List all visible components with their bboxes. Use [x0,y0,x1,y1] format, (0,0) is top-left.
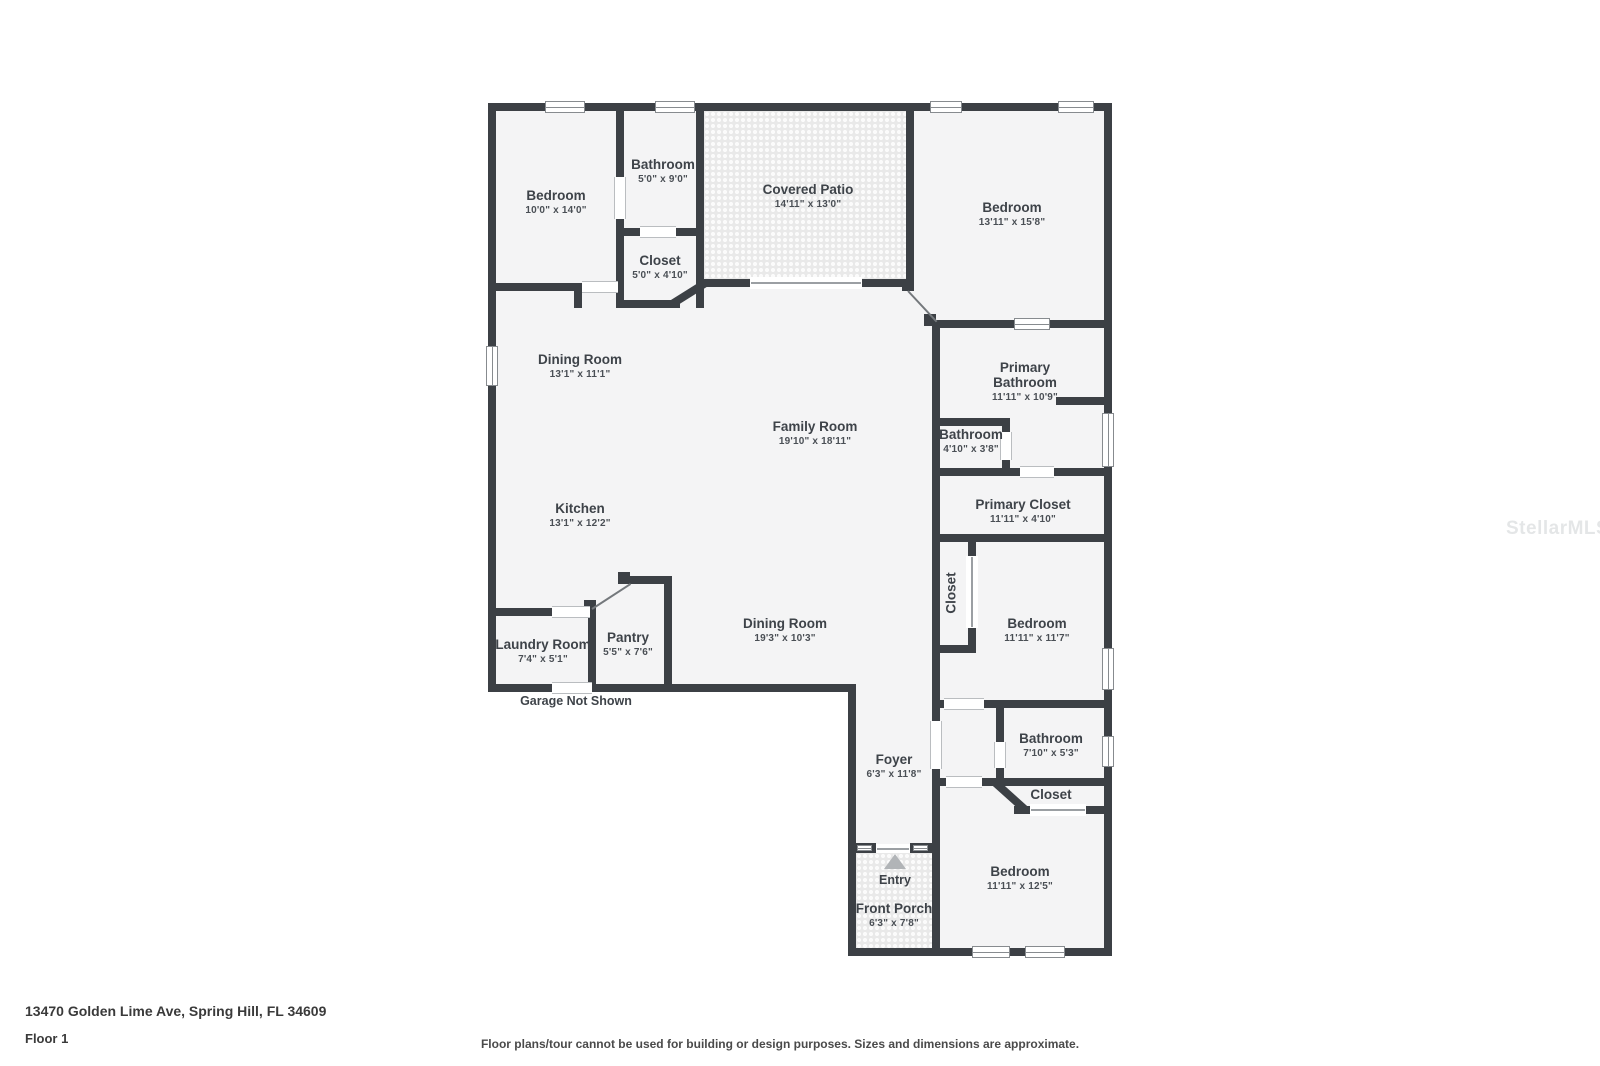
room-dims: 13'1" x 12'2" [549,518,610,529]
room-dims: 19'10" x 18'11" [773,436,858,447]
room-name: Family Room [773,419,858,434]
door-opening [640,226,676,238]
room-dims: 4'10" x 3'8" [939,444,1003,455]
entry-label: Entry [879,873,911,887]
window [913,845,928,851]
room-dims: 6'3" x 11'8" [866,769,921,780]
room-label-closet-1: Closet 5'0" x 4'10" [632,253,688,281]
door-opening [552,682,592,694]
room-dims: 11'11" x 12'5" [987,881,1053,892]
room-label-laundry-room: Laundry Room 7'4" x 5'1" [495,637,590,665]
room-label-bathroom-1: Bathroom 5'0" x 9'0" [631,157,695,185]
room-dims: 11'11" x 10'9" [983,392,1067,403]
wall [932,418,1010,426]
disclaimer-text: Floor plans/tour cannot be used for buil… [0,1037,1560,1051]
room-name: Bedroom [1004,616,1069,631]
wall [616,103,624,179]
wall [664,576,672,684]
wall [696,103,704,308]
room-name: Bathroom [631,157,695,172]
room-label-bedroom-1: Bedroom 10'0" x 14'0" [525,188,586,216]
room-label-pantry: Pantry 5'5" x 7'6" [603,630,653,658]
room-name: Primary Closet [975,497,1070,512]
room-label-closet-3: Closet [943,572,958,613]
room-dims: 5'0" x 4'10" [632,270,688,281]
sliding-door [876,844,910,853]
window [857,845,872,851]
room-name: Foyer [866,752,921,767]
room-name: Kitchen [549,501,610,516]
window [1102,413,1114,467]
window [1014,318,1050,330]
room-label-closet-2: Closet [1030,787,1071,802]
window [930,101,962,113]
wall [932,645,976,653]
room-dims: 10'0" x 14'0" [525,205,586,216]
room-label-foyer: Foyer 6'3" x 11'8" [866,752,921,780]
room-name: Primary Bathroom [983,360,1067,390]
room-name: Dining Room [538,352,622,367]
entry-direction-arrow-icon [884,854,906,869]
room-dims: 13'11" x 15'8" [979,217,1046,228]
room-label-bedroom-2: Bedroom 13'11" x 15'8" [979,200,1046,228]
sliding-door [750,277,862,289]
room-name: Covered Patio [763,182,854,197]
door-opening [994,742,1006,768]
door-opening [930,721,942,769]
wall [1104,103,1112,956]
wall [932,767,940,956]
wall [618,572,630,584]
room-label-bedroom-4: Bedroom 11'11" x 12'5" [987,864,1053,892]
door-opening [944,698,984,710]
room-label-bathroom-2: Bathroom 7'10" x 5'3" [1019,731,1083,759]
floor-plan: Bedroom 10'0" x 14'0" Bathroom 5'0" x 9'… [0,0,1600,1066]
room-label-dining-room-2: Dining Room 19'3" x 10'3" [743,616,827,644]
wall [932,534,1112,542]
room-name: Front Porch [856,901,933,916]
window [1058,101,1094,113]
room-label-family-room: Family Room 19'10" x 18'11" [773,419,858,447]
sliding-door [1030,804,1086,816]
room-name: Closet [943,572,958,613]
room-dims: 7'10" x 5'3" [1019,748,1083,759]
room-dims: 6'3" x 7'8" [856,918,933,929]
room-label-primary-closet: Primary Closet 11'11" x 4'10" [975,497,1070,525]
room-label-covered-patio: Covered Patio 14'11" x 13'0" [763,182,854,210]
wall [932,326,940,723]
door-opening [1020,466,1054,478]
room-label-front-porch: Front Porch 6'3" x 7'8" [856,901,933,929]
door-opening [614,177,626,219]
room-dims: 19'3" x 10'3" [743,633,827,644]
room-label-kitchen: Kitchen 13'1" x 12'2" [549,501,610,529]
room-dims: 11'11" x 11'7" [1004,633,1069,644]
room-name: Closet [632,253,688,268]
room-dims: 5'0" x 9'0" [631,174,695,185]
window [1102,648,1114,690]
window [486,346,498,386]
door-opening [946,776,982,788]
floor-plan-page: Bedroom 10'0" x 14'0" Bathroom 5'0" x 9'… [0,0,1600,1066]
room-dims: 13'1" x 11'1" [538,369,622,380]
wall [932,948,1112,956]
window [1102,736,1114,767]
sliding-door [966,556,978,628]
room-name: Laundry Room [495,637,590,652]
room-name: Closet [1030,787,1071,802]
room-name: Bathroom [1019,731,1083,746]
window [545,101,585,113]
room-name: Dining Room [743,616,827,631]
room-name: Pantry [603,630,653,645]
door-opening [582,281,618,293]
wall [488,103,496,692]
garage-not-shown-note: Garage Not Shown [520,694,632,708]
room-label-dining-room-1: Dining Room 13'1" x 11'1" [538,352,622,380]
room-dims: 5'5" x 7'6" [603,647,653,658]
room-dims: 7'4" x 5'1" [495,654,590,665]
room-name: Bedroom [987,864,1053,879]
wall [906,103,914,287]
wall [574,291,582,308]
property-address: 13470 Golden Lime Ave, Spring Hill, FL 3… [25,1003,326,1019]
watermark-stellar-mls: StellarMLS [1506,518,1600,540]
room-label-primary-bathroom: Primary Bathroom 11'11" x 10'9" [983,360,1067,403]
wall [488,684,856,692]
room-name: Bathroom [939,427,1003,442]
room-name: Bedroom [979,200,1046,215]
door-opening [552,606,590,618]
window [972,946,1010,958]
room-label-bathroom-3: Bathroom 4'10" x 3'8" [939,427,1003,455]
room-dims: 14'11" x 13'0" [763,199,854,210]
window [655,101,695,113]
window [1025,946,1065,958]
room-label-bedroom-3: Bedroom 11'11" x 11'7" [1004,616,1069,644]
room-name: Bedroom [525,188,586,203]
wall [488,283,582,291]
wall [848,948,940,956]
room-dims: 11'11" x 4'10" [975,514,1070,525]
